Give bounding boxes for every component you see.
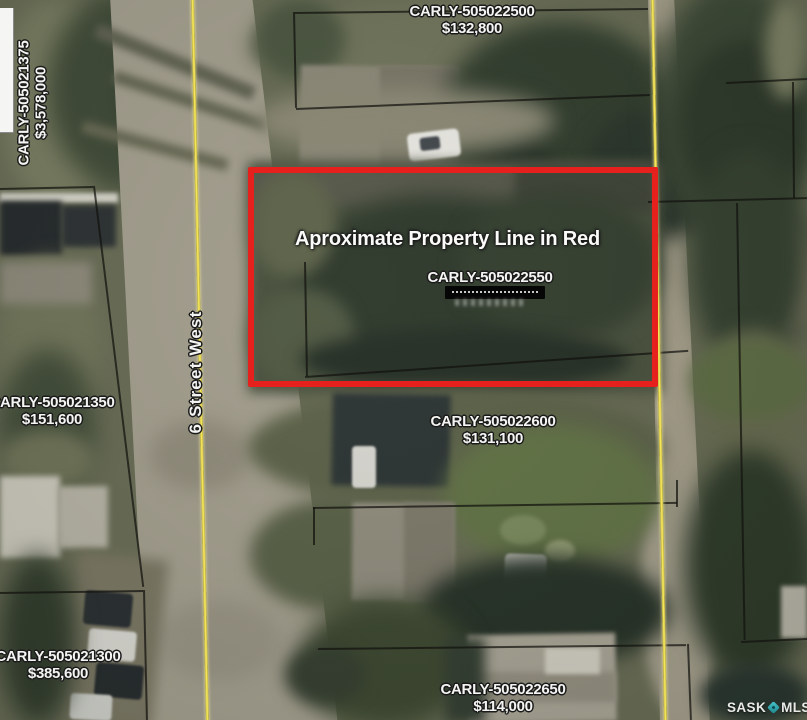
parcel-price: $3,578,000 (33, 36, 50, 171)
parcel-price: $114,000 (433, 698, 573, 715)
parcel-price: $151,600 (0, 411, 122, 428)
yard-item (500, 515, 546, 545)
street-name-label: 6 Street West (186, 297, 208, 447)
lawn-patch (765, 0, 807, 100)
sask-mls-logo-prefix: SASK (727, 700, 766, 715)
sask-mls-logo-suffix: MLS® (781, 700, 807, 715)
parcel-id: CARLY-505021350 (0, 394, 122, 411)
sask-mls-logo: SASK MLS® (727, 700, 807, 715)
road-shading (160, 600, 280, 680)
parcel-id: CARLY-505021300 (0, 648, 128, 665)
parcel-price: $385,600 (0, 665, 128, 682)
parcel-boundary-line (313, 507, 315, 545)
parcel-id: CARLY-505022600 (423, 413, 563, 430)
house-roof (0, 201, 62, 255)
parcel-price: $132,800 (352, 20, 592, 37)
house-roof (58, 486, 108, 548)
tree-canopy (0, 555, 75, 720)
shed-roof (285, 645, 365, 705)
vehicle (352, 446, 376, 488)
parcel-boundary-line (676, 480, 678, 507)
parcel-id: CARLY-505022550 (420, 269, 560, 286)
parcel-label[interactable]: CARLY-505022550 (420, 269, 560, 286)
driveway (0, 262, 92, 304)
tree-canopy (685, 450, 807, 680)
parcel-price: $131,100 (423, 430, 563, 447)
parcel-label[interactable]: CARLY-505021300 $385,600 (0, 648, 128, 683)
vehicle-window (419, 136, 440, 151)
parcel-label[interactable]: CARLY-505022650 $114,000 (433, 681, 573, 716)
house-trim (545, 648, 600, 674)
annotation-text: Aproximate Property Line in Red (295, 228, 600, 251)
house-roof (781, 586, 807, 638)
parcel-id: CARLY-505022650 (433, 681, 573, 698)
parcel-id: CARLY-505022500 (352, 3, 592, 20)
vehicle (83, 590, 134, 628)
vehicle (69, 693, 112, 720)
tree-canopy (690, 340, 807, 420)
mls-diamond-icon (767, 701, 780, 714)
house-roof (0, 476, 60, 558)
redacted-price-remnant (455, 299, 527, 306)
parcel-label[interactable]: CARLY-505021375 $3,578,000 (16, 36, 50, 171)
house-roof (62, 205, 116, 247)
parcel-label[interactable]: CARLY-505022500 $132,800 (352, 3, 592, 38)
parcel-label[interactable]: CARLY-505021350 $151,600 (0, 394, 122, 429)
parcel-label[interactable]: CARLY-505022600 $131,100 (423, 413, 563, 448)
parcel-id: CARLY-505021375 (16, 36, 33, 171)
redaction-strike-line (452, 291, 538, 293)
map-edge-artifact (0, 8, 14, 133)
driveway (255, 88, 555, 153)
aerial-map: Aproximate Property Line in Red CARLY-50… (0, 0, 807, 720)
